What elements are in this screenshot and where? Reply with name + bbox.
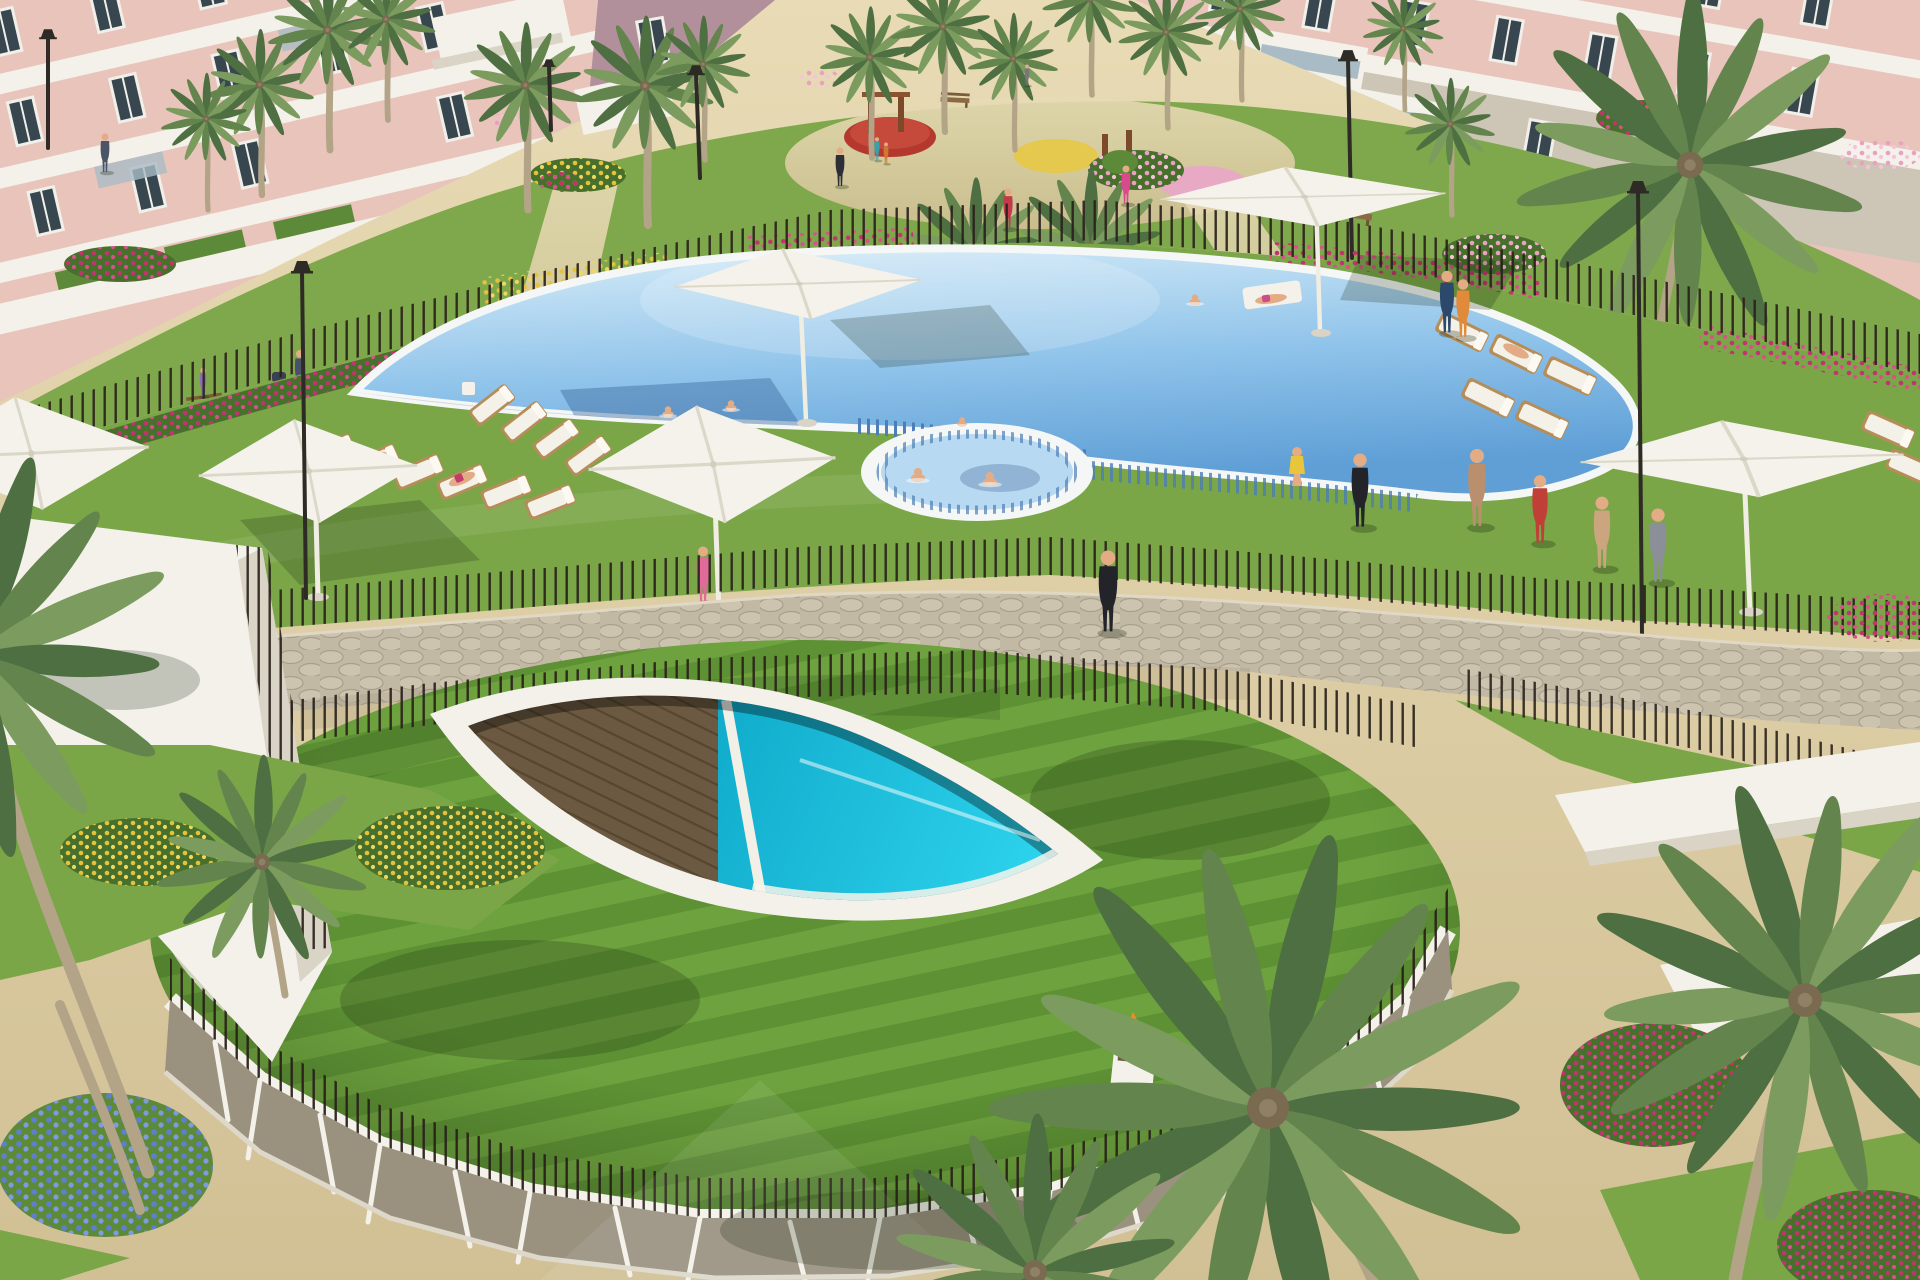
scene-canvas [0,0,1920,1280]
aerial-render: Aerial 3D render of a residential resort… [0,0,1920,1280]
circular-spa [861,423,1093,521]
side-table [462,382,475,395]
